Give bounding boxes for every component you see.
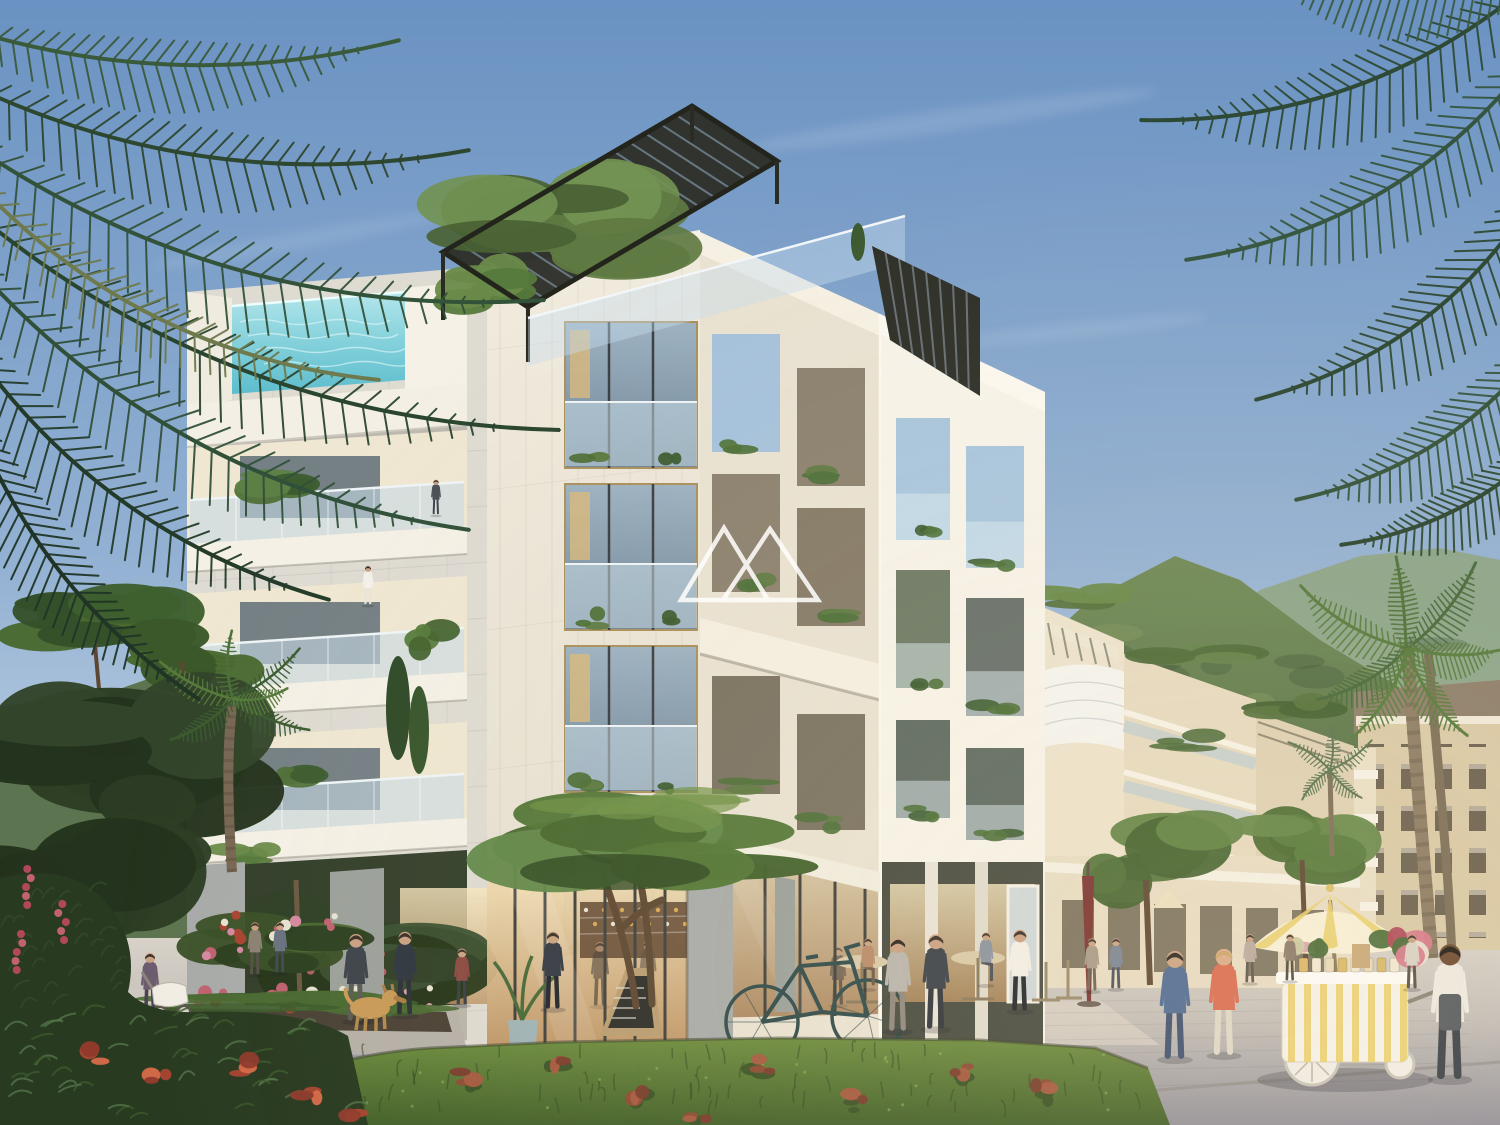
- warm-light-grade: [0, 0, 1500, 1125]
- render-stage: [0, 0, 1500, 1125]
- architectural-render: [0, 0, 1500, 1125]
